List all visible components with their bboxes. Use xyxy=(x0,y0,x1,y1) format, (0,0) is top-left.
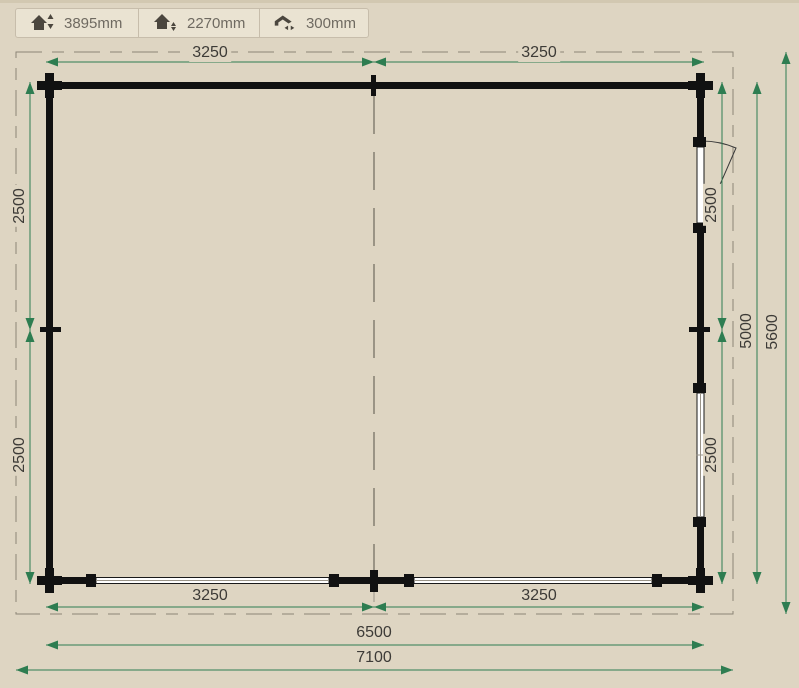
dim-label-top-left: 3250 xyxy=(189,44,231,62)
window-bottom-right xyxy=(404,574,662,587)
dim-label-right-top: 2500 xyxy=(703,184,721,226)
window-bottom-left xyxy=(86,574,339,587)
dim-label-right-bottom: 2500 xyxy=(703,434,721,476)
corner-log-joints xyxy=(37,73,713,593)
dim-label-left-top: 2500 xyxy=(11,185,29,227)
mid-wall-ticks xyxy=(40,75,710,592)
walls xyxy=(46,82,704,584)
dim-label-total-depth: 5600 xyxy=(764,311,782,353)
dim-label-total-width: 7100 xyxy=(353,649,395,667)
wall-left xyxy=(46,82,53,584)
tick-top-wall xyxy=(371,75,376,96)
dim-label-bottom-left: 3250 xyxy=(189,587,231,605)
tick-right-wall xyxy=(689,327,710,332)
post-bottom-wall xyxy=(370,570,378,592)
floor-plan-drawing xyxy=(0,0,799,688)
dim-label-wall-depth: 5000 xyxy=(738,310,756,352)
dim-label-wall-width: 6500 xyxy=(353,624,395,642)
dim-label-bottom-right: 3250 xyxy=(518,587,560,605)
tick-left-wall xyxy=(40,327,61,332)
dim-label-top-right: 3250 xyxy=(518,44,560,62)
dim-label-left-bottom: 2500 xyxy=(11,434,29,476)
